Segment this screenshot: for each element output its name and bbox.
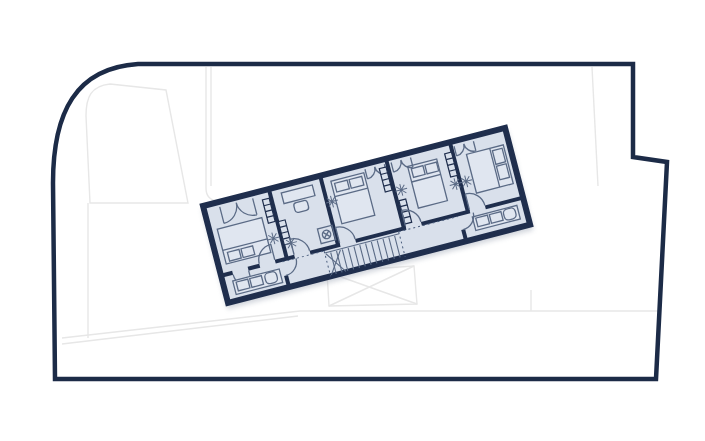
- floor-plan-page: [0, 0, 705, 441]
- floor-plan-canvas: [0, 0, 705, 441]
